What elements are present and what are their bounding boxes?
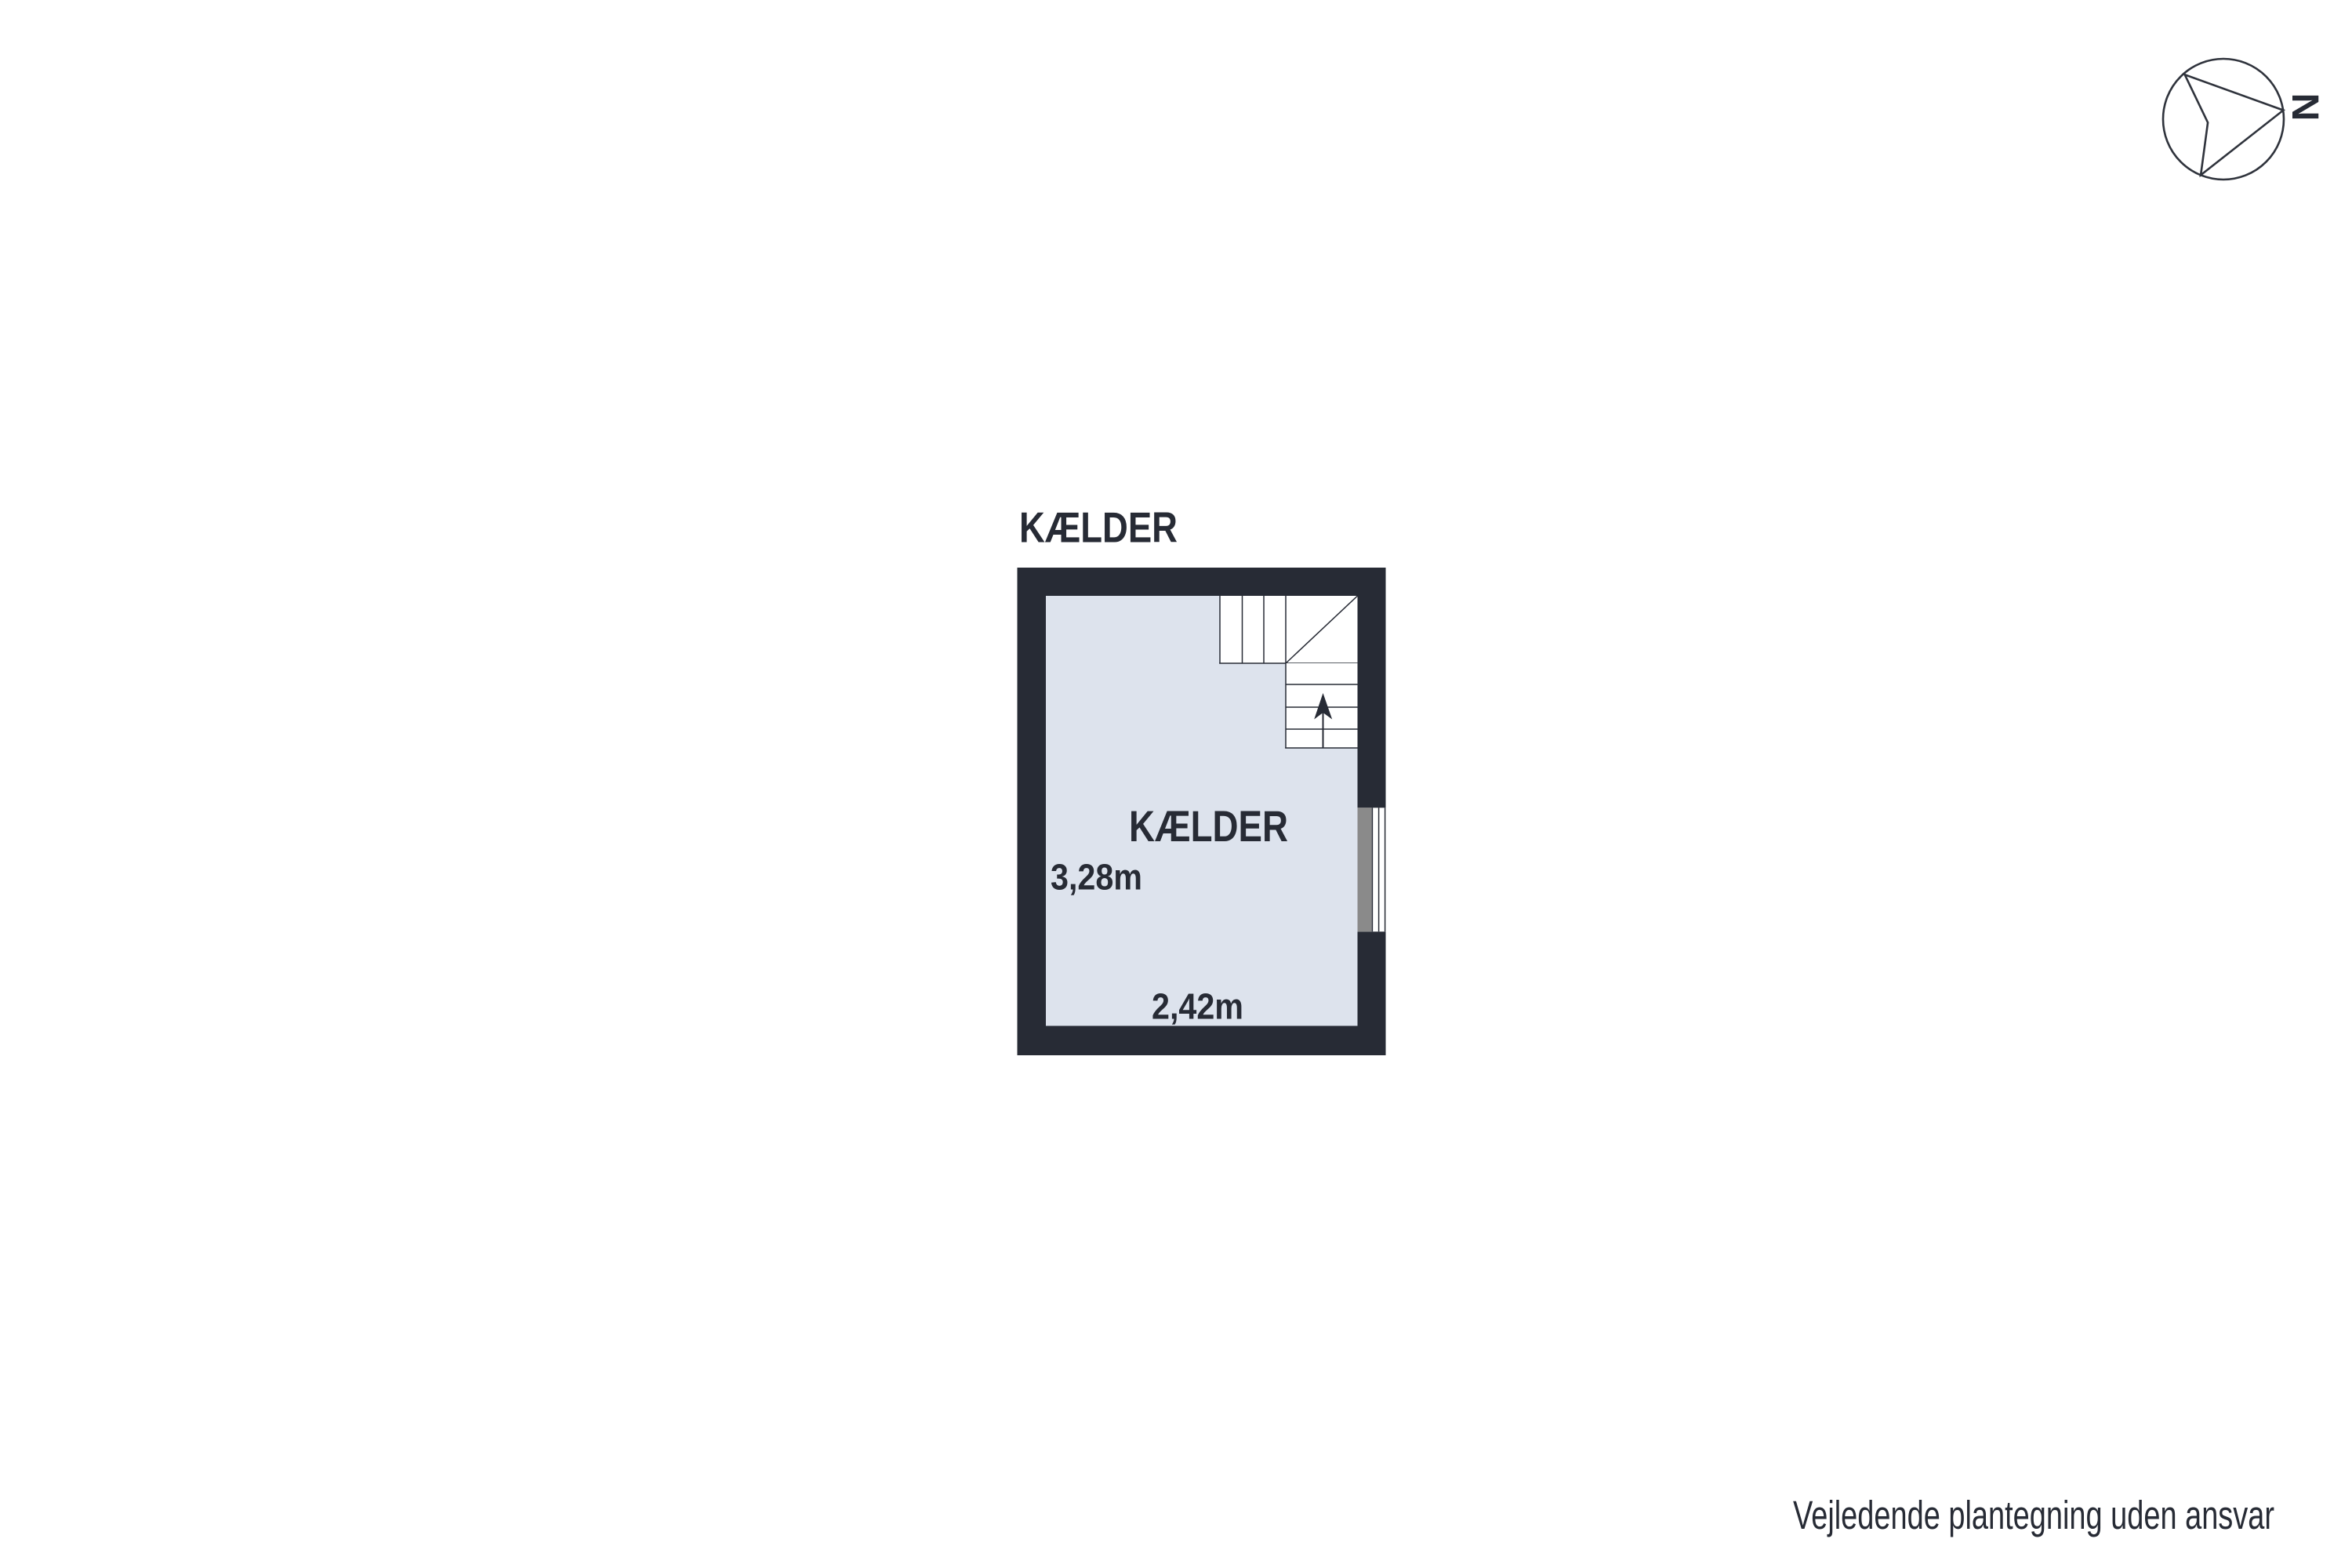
svg-text:KÆLDER: KÆLDER [1129,801,1288,851]
svg-text:N: N [2284,93,2325,122]
svg-text:3,28m: 3,28m [1051,857,1142,898]
svg-text:2,42m: 2,42m [1152,985,1243,1026]
svg-text:KÆLDER: KÆLDER [1019,503,1178,552]
svg-text:Vejledende plantegning uden an: Vejledende plantegning uden ansvar [1793,1493,2274,1537]
